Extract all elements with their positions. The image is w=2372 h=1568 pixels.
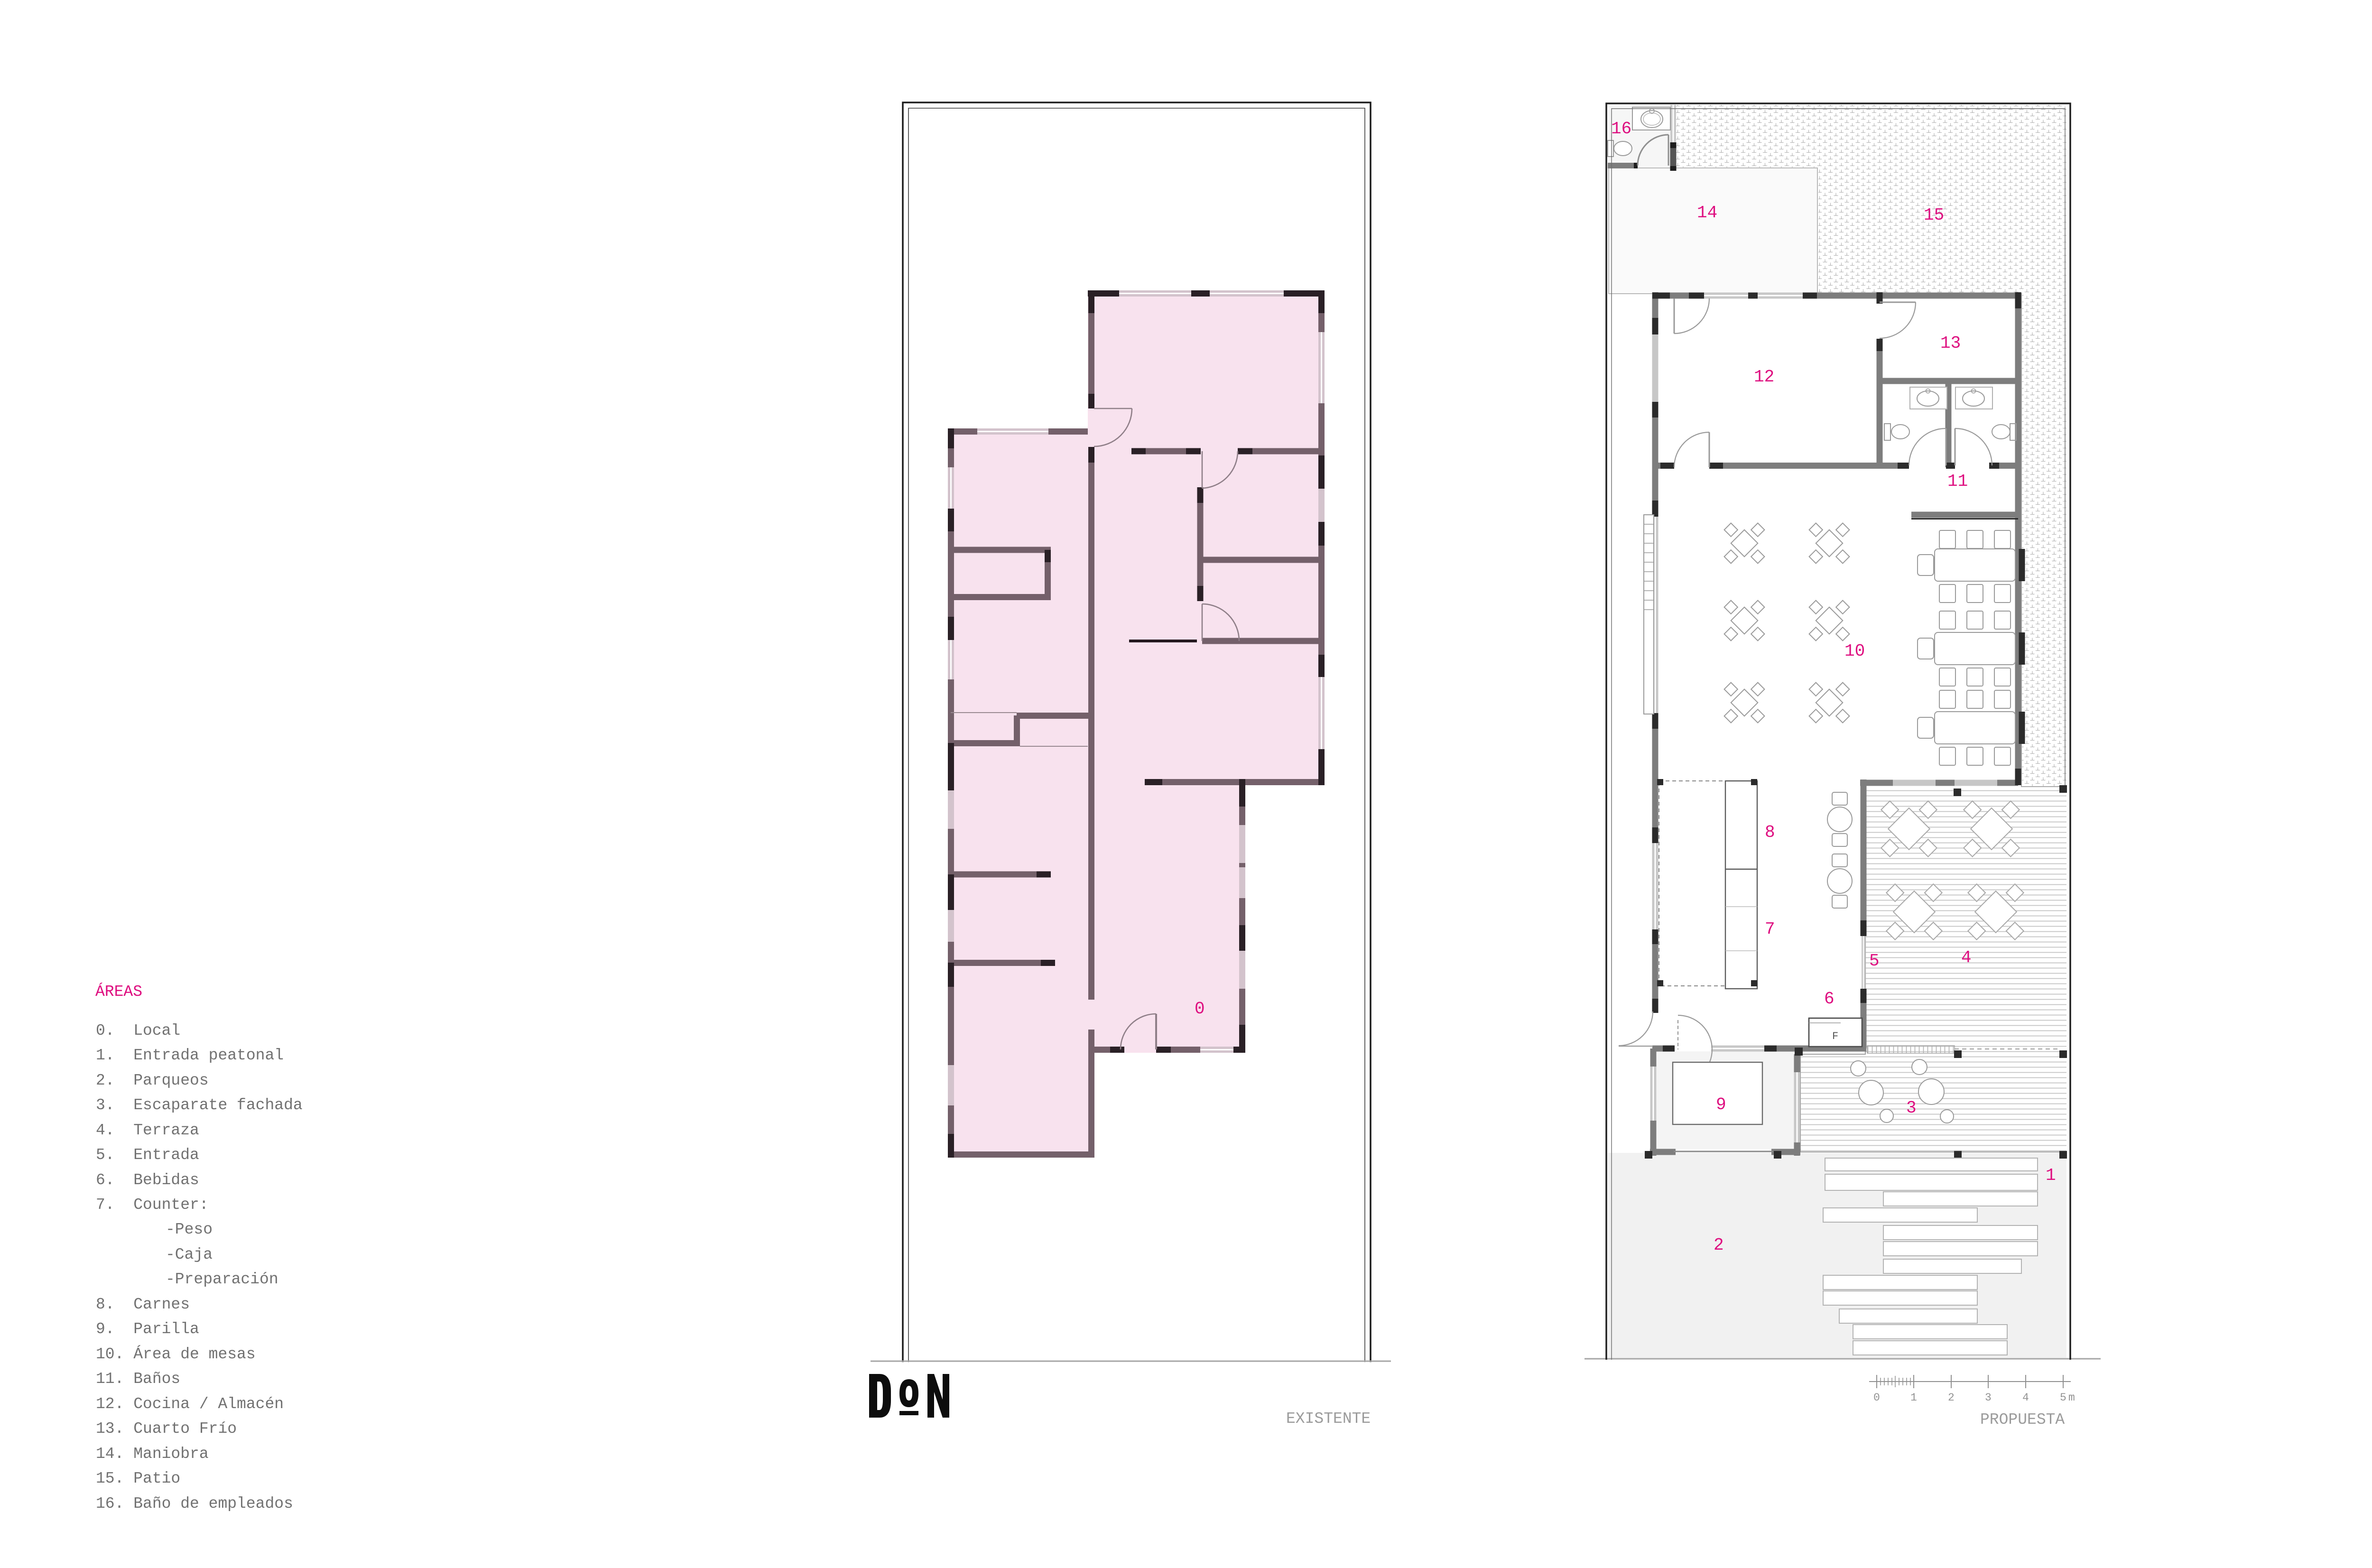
svg-text:13: 13	[1940, 334, 1961, 353]
svg-text:2: 2	[1948, 1392, 1955, 1404]
svg-text:15. Patio: 15. Patio	[96, 1470, 180, 1487]
svg-text:8. Carnes: 8. Carnes	[96, 1296, 190, 1313]
svg-text:ÁREAS: ÁREAS	[95, 983, 142, 1001]
svg-text:0: 0	[1195, 999, 1205, 1019]
svg-text:0: 0	[1873, 1392, 1880, 1404]
svg-text:10: 10	[1844, 641, 1865, 661]
svg-text:5: 5	[1869, 951, 1880, 971]
svg-text:10. Área de mesas: 10. Área de mesas	[96, 1345, 256, 1363]
svg-text:16. Baño de empleados: 16. Baño de empleados	[96, 1495, 293, 1512]
svg-text:PROPUESTA: PROPUESTA	[1980, 1411, 2065, 1429]
svg-text:14. Maniobra: 14. Maniobra	[96, 1445, 209, 1463]
svg-text:8: 8	[1765, 823, 1775, 842]
svg-text:4. Terraza: 4. Terraza	[96, 1122, 199, 1139]
svg-text:1: 1	[1910, 1392, 1917, 1404]
svg-text:1: 1	[2046, 1166, 2056, 1185]
svg-text:4: 4	[1961, 948, 1972, 967]
svg-text:11. Baños: 11. Baños	[96, 1370, 180, 1388]
svg-text:16: 16	[1611, 119, 1631, 139]
svg-text:2. Parqueos: 2. Parqueos	[96, 1072, 209, 1089]
svg-text:14: 14	[1697, 203, 1717, 223]
svg-text:12: 12	[1754, 367, 1774, 387]
svg-text:-Caja: -Caja	[166, 1246, 213, 1263]
svg-text:F: F	[1832, 1030, 1838, 1042]
svg-text:9: 9	[1716, 1095, 1726, 1114]
svg-text:3: 3	[1906, 1098, 1917, 1118]
svg-text:4: 4	[2022, 1392, 2029, 1404]
svg-text:12. Cocina / Almacén: 12. Cocina / Almacén	[96, 1395, 284, 1413]
svg-text:13. Cuarto Frío: 13. Cuarto Frío	[96, 1420, 237, 1438]
svg-text:9. Parilla: 9. Parilla	[96, 1320, 199, 1338]
svg-text:6. Bebidas: 6. Bebidas	[96, 1171, 199, 1189]
svg-text:3: 3	[1985, 1392, 1992, 1404]
svg-text:-Peso: -Peso	[166, 1221, 213, 1238]
svg-text:0. Local: 0. Local	[96, 1022, 180, 1039]
svg-text:-Preparación: -Preparación	[166, 1271, 278, 1288]
svg-text:3. Escaparate fachada: 3. Escaparate fachada	[96, 1096, 303, 1114]
svg-text:7: 7	[1765, 919, 1775, 939]
svg-text:2: 2	[1714, 1235, 1724, 1255]
svg-text:6: 6	[1824, 989, 1835, 1009]
svg-text:7. Counter:: 7. Counter:	[96, 1196, 209, 1214]
svg-text:15: 15	[1924, 205, 1944, 225]
svg-text:11: 11	[1947, 472, 1968, 491]
svg-text:m: m	[2068, 1392, 2075, 1404]
svg-text:5. Entrada: 5. Entrada	[96, 1146, 199, 1164]
svg-text:5: 5	[2060, 1392, 2066, 1404]
svg-text:EXISTENTE: EXISTENTE	[1286, 1410, 1371, 1428]
svg-text:1. Entrada peatonal: 1. Entrada peatonal	[96, 1047, 284, 1064]
